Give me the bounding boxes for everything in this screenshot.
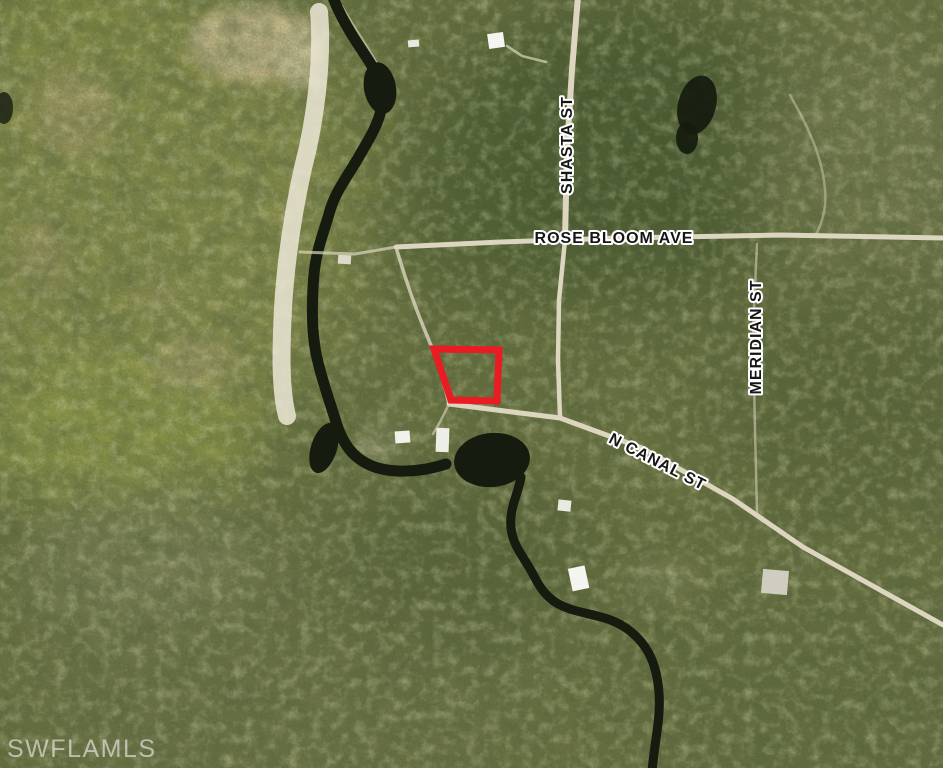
building [761,569,789,595]
street-label-shasta-st: SHASTA ST [559,96,576,194]
street-label-rose-bloom-ave: ROSE BLOOM AVE [535,230,694,247]
aerial-imagery: SHASTA ST ROSE BLOOM AVE MERIDIAN ST N C… [0,0,943,768]
building [557,499,571,511]
aerial-map: SHASTA ST ROSE BLOOM AVE MERIDIAN ST N C… [0,0,943,768]
building [338,255,351,265]
building [395,430,411,443]
street-label-meridian-st: MERIDIAN ST [748,280,765,395]
watermark-swflamls: SWFLAMLS [7,735,157,763]
building [487,32,505,49]
pond-northeast-lobe [676,122,698,154]
building [436,428,450,452]
building [408,39,420,47]
